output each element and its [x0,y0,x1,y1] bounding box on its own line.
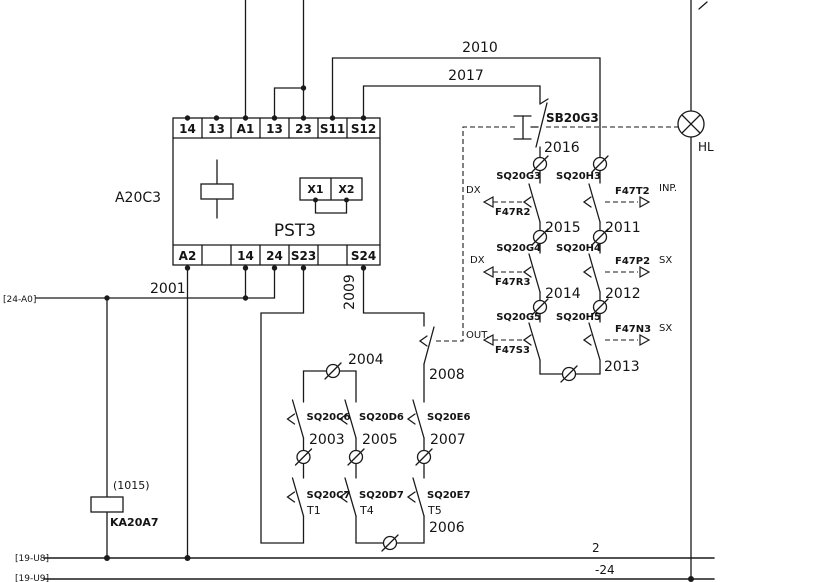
tag-out: OUT. [466,330,489,341]
terminal-a2: A2 [179,249,197,263]
lamp-icon [678,111,704,137]
tag-sx-2: SX [659,323,672,334]
terminal-24: 24 [266,249,283,263]
switch-label-sq20h3: SQ20H3 [556,171,601,182]
tag-inp: INP. [659,183,677,194]
wire-label-2001: 2001 [150,281,186,297]
x1-x2-terminals: X1 X2 [300,178,362,213]
terminal-s23: S23 [291,249,316,263]
limit-switch-contact-sq20e6 [408,400,424,438]
switch-label-sb20g3: SB20G3 [546,111,599,125]
tag-dx-2: DX [470,255,485,266]
signal-arrow-left-icon [484,197,493,207]
bottom-contact-circuit: 2009 OUT. 2008 2004 SQ20C6 S [261,265,489,551]
right-contact-ladder: SB20G3 2016 SQ20G3 SQ20H3 DX F47R2 F47 [466,99,677,382]
connector-pin-icon [325,363,341,379]
signal-label-f47n3: F47N3 [615,324,651,335]
ref-left: [24-A0] [3,295,36,305]
wire-label-2008: 2008 [429,367,465,383]
switch-label-sq20c6: SQ20C6 [307,412,351,423]
limit-switch-contact-sq20c7 [288,478,304,516]
signal-label-f47r3: F47R3 [495,277,530,288]
timer-label-t5: T5 [427,504,442,517]
switch-label-sq20e7: SQ20E7 [427,490,470,501]
timer-label-t4: T4 [359,504,374,517]
signal-arrow-right-icon [640,335,649,345]
wire-label-2007: 2007 [430,432,466,448]
supply-wiring: [24-A0] 2001 (1015) KA20A7 [3,265,275,558]
wire-label-2004: 2004 [348,352,384,368]
switch-label-sq20g5: SQ20G5 [496,312,541,323]
connector-pin-icon [532,156,548,172]
lamp-branch: HL [678,0,714,582]
switch-label-sq20c7: SQ20C7 [307,490,351,501]
wire-label-2010: 2010 [462,40,498,56]
limit-switch-contact-sq20e7 [408,478,424,516]
terminal-x1: X1 [307,183,323,196]
terminal-13-top: 13 [208,122,225,136]
relay-ref: KA20A7 [110,516,159,529]
terminal-a1: A1 [237,122,255,136]
timer-label-t1: T1 [306,504,321,517]
ref-rail-1: [19-U8] [15,554,49,564]
connector-pin-icon [382,535,398,551]
wire-label-2014: 2014 [545,286,581,302]
tag-dx-1: DX [466,185,481,196]
ref-rail-2: [19-U9] [15,574,49,582]
pst3-relay-block: 14 13 A1 13 23 S11 S12 A2 14 24 S23 S24 … [115,115,380,270]
lamp-label: HL [698,140,714,154]
terminal-x2: X2 [338,183,354,196]
wire-label-2017: 2017 [448,68,484,84]
device-model: PST3 [274,221,316,241]
wire-label-2006: 2006 [429,520,465,536]
signal-label-f47s3: F47S3 [495,345,530,356]
connector-pin-icon [416,449,432,465]
terminal-s12: S12 [351,122,376,136]
schematic-canvas: 2010 2017 14 13 A1 13 23 S11 S12 A2 14 2… [0,0,819,582]
relay-coil-ka20a7 [91,497,123,512]
signal-arrow-right-icon [640,197,649,207]
power-rails: [19-U8] [19-U9] 2 -24 [15,541,714,582]
signal-arrow-right-icon [640,267,649,277]
wire-label-2016: 2016 [544,140,580,156]
rail-label-2: 2 [592,541,600,555]
terminal-14-bottom: 14 [237,249,254,263]
wire-continuation-mark [699,2,707,9]
terminal-s11: S11 [320,122,345,136]
terminal-14-top: 14 [179,122,196,136]
connector-pin-icon [296,449,312,465]
device-ref: A20C3 [115,190,161,206]
switch-label-sq20g4: SQ20G4 [496,243,541,254]
terminal-23: 23 [295,122,312,136]
signal-label-f47r2: F47R2 [495,207,530,218]
coil-icon [201,160,233,218]
rail-label-minus24: -24 [595,563,615,577]
switch-label-sq20h4: SQ20H4 [556,243,601,254]
switch-label-sq20d6: SQ20D6 [359,412,404,423]
connector-pin-icon [348,449,364,465]
wire-label-2003: 2003 [309,432,345,448]
signal-arrow-left-icon [484,267,493,277]
switch-label-sq20g3: SQ20G3 [496,171,541,182]
wire-label-2011: 2011 [605,220,641,236]
wire-label-2005: 2005 [362,432,398,448]
signal-label-f47t2: F47T2 [615,186,650,197]
switch-label-sq20e6: SQ20E6 [427,412,470,423]
terminal-13b-top: 13 [266,122,283,136]
switch-label-sq20h5: SQ20H5 [556,312,601,323]
wire-label-2009: 2009 [342,274,358,310]
switch-label-sq20d7: SQ20D7 [359,490,404,501]
connector-pin-icon [561,366,577,382]
schematic-page: 2010 2017 14 13 A1 13 23 S11 S12 A2 14 2… [0,0,819,582]
relay-code: (1015) [113,479,150,492]
tag-sx-1: SX [659,255,672,266]
wire-label-2013: 2013 [604,359,640,375]
wire-label-2012: 2012 [605,286,641,302]
terminal-s24: S24 [351,249,376,263]
connector-pin-icon [592,156,608,172]
out-contact [420,313,434,364]
signal-label-f47p2: F47P2 [615,256,650,267]
wire-label-2015: 2015 [545,220,581,236]
limit-switch-contact-sq20c6 [288,400,304,438]
